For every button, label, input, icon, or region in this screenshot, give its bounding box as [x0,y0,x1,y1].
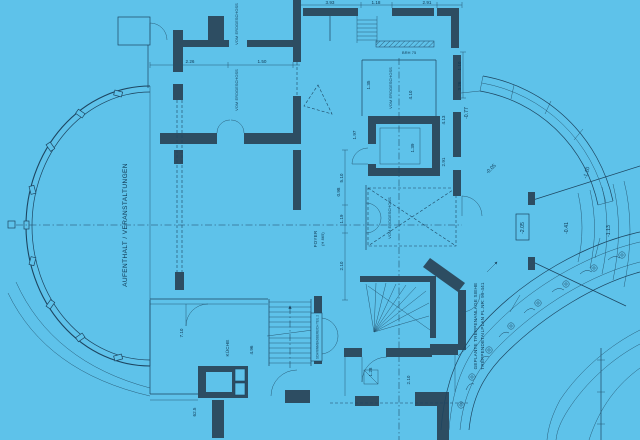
dim-label: 0.98 [336,187,341,196]
existing-wall-hatch [376,41,434,47]
dim-label: 2.10 [406,375,411,384]
note-parapet: BRH 75 [402,50,416,55]
dim-label: 2.10 [339,261,344,270]
room-label-from-ground-3: VOM ERDGESCHOSS [388,67,393,109]
dim-label: 5.10 [339,173,344,182]
dim-label: 62.5 [192,407,197,416]
blueprint-page: AUFENTHALT / VERANSTALTUNGEN FOYER (H 86… [0,0,640,440]
level-label-3: -1.13 [606,225,612,237]
dim-label: 4.96 [249,345,254,354]
dim-label: 3.93 [326,0,335,5]
dim-label: 1.39 [410,143,415,152]
note-pool: SCHWIMMBADBEREICH TEIL 2 [315,315,320,359]
dim-label: 1.35 [366,80,371,89]
dim-label: 4.13 [441,115,446,124]
dim-label: 1.28 [368,367,373,376]
dim-label: 4.10 [408,90,413,99]
dim-label: 2.91 [423,0,432,5]
dim-label: 1.97 [352,130,357,139]
note-stair-line2: TREPPENDETAILPLAN PL.NR: 99-441 [480,282,485,370]
floor-plan-canvas: AUFENTHALT / VERANSTALTUNGEN FOYER (H 86… [0,0,640,440]
dim-label: 1.18 [372,0,381,5]
note-stair-line1: GEPLANTE TREPPENANLAGE SIEHE [473,283,478,370]
paper-background [0,0,640,440]
dim-label: 1.50 [258,59,267,64]
room-label-kitchen: KÜCHE [224,339,230,356]
dim-label: 2.91 [441,157,446,166]
dim-label: 1.10 [457,61,462,70]
dim-label: 3.26 [457,81,462,90]
room-label-from-ground-4: VOM ERDGESCHOSS [387,197,392,239]
dim-label: 7.10 [179,328,184,337]
level-label-1: -2.05 [520,222,526,234]
room-label-from-ground-1: VOM ERDGESCHOSS [234,3,239,45]
room-label-foyer: FOYER [313,230,318,247]
room-label-hall: AUFENTHALT / VERANSTALTUNGEN [122,163,129,287]
level-label-2: -0.41 [564,222,570,234]
dim-label: 2.26 [186,59,195,64]
room-label-from-ground-2: VOM ERDGESCHOSS [234,69,239,111]
room-label-foyer-height: (H 865) [320,232,325,246]
dim-label: 1.19 [339,214,344,223]
level-label-4: -0.77 [464,107,470,119]
